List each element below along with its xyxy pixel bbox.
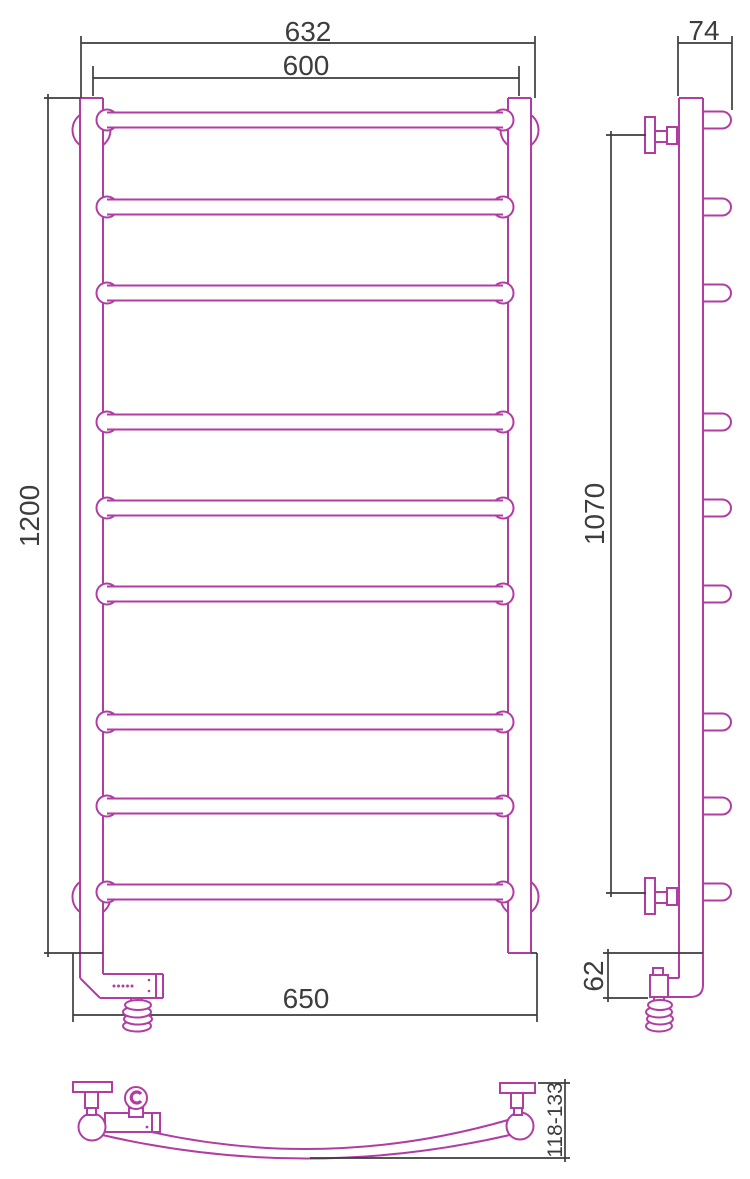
bottom-bracket-right <box>500 1083 535 1115</box>
bottom-cable-gland <box>125 1087 147 1117</box>
side-tube <box>668 98 703 997</box>
dim-label-mount-span: 1070 <box>579 483 610 545</box>
dim-label-bottom-offset: 62 <box>578 960 609 991</box>
dim-side-depth: 74 <box>678 15 732 110</box>
front-rung-9 <box>97 882 514 903</box>
side-rung-stubs <box>703 112 731 901</box>
front-rung-8 <box>97 796 514 817</box>
dim-side-mount-span: 1070 <box>579 131 646 897</box>
bottom-left-post-ball <box>79 1114 106 1141</box>
side-view <box>645 98 731 1032</box>
front-right-post <box>508 98 531 953</box>
front-rung-1 <box>97 110 514 131</box>
front-left-post <box>80 98 103 978</box>
side-bracket-top <box>645 117 677 153</box>
dim-label-bottom-width: 650 <box>283 983 330 1014</box>
front-view <box>73 98 539 1032</box>
front-rung-5 <box>97 498 514 519</box>
bottom-view <box>73 1082 535 1159</box>
front-electrical-box <box>80 974 163 998</box>
front-rung-4 <box>97 412 514 433</box>
dim-label-overall-width: 632 <box>285 16 332 47</box>
dim-label-height: 1200 <box>14 485 45 547</box>
front-rung-3 <box>97 283 514 304</box>
front-rung-7 <box>97 712 514 733</box>
bottom-right-post-ball <box>507 1113 534 1140</box>
bottom-bracket-left <box>73 1082 112 1115</box>
technical-drawing-canvas: 632 600 1200 650 74 1070 62 <box>0 0 750 1179</box>
front-rung-2 <box>97 197 514 218</box>
side-power-cord-coil <box>646 1000 673 1032</box>
front-rung-6 <box>97 584 514 605</box>
towel-rail-drawing: 632 600 1200 650 74 1070 62 <box>0 0 750 1179</box>
side-bracket-bottom <box>645 878 677 914</box>
front-power-cord-coil <box>123 998 152 1032</box>
dim-label-wall-clearance: 118-133 <box>544 1082 567 1158</box>
dim-front-axis-width: 600 <box>93 50 519 96</box>
side-electrical-connector <box>650 968 668 1003</box>
dim-label-depth: 74 <box>688 15 719 46</box>
dim-label-axis-width: 600 <box>283 50 330 81</box>
